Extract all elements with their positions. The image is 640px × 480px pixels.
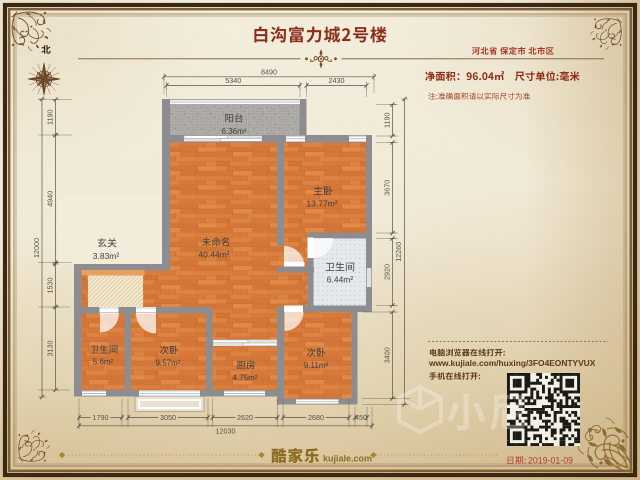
svg-text:3.83m²: 3.83m²: [93, 251, 120, 261]
svg-text:8490: 8490: [261, 67, 277, 76]
svg-text:12260: 12260: [394, 242, 403, 262]
svg-text:9.11m²: 9.11m²: [304, 361, 329, 370]
svg-text:www.kujiale.com/huxing/3FO4EON: www.kujiale.com/huxing/3FO4EONTYVUX: [428, 358, 596, 368]
svg-text:3130: 3130: [46, 341, 55, 357]
svg-text:5.6m²: 5.6m²: [93, 358, 114, 367]
svg-text:4.75m²: 4.75m²: [233, 374, 258, 383]
svg-text:1790: 1790: [93, 413, 109, 422]
svg-text:6.44m²: 6.44m²: [327, 275, 354, 285]
svg-text:12030: 12030: [216, 427, 236, 436]
svg-text:3050: 3050: [160, 413, 176, 422]
svg-text:3670: 3670: [383, 180, 392, 196]
svg-text:2019-01-09: 2019-01-09: [528, 456, 573, 466]
svg-text:9.57m²: 9.57m²: [156, 359, 181, 368]
svg-text:40.44m²: 40.44m²: [198, 250, 229, 260]
svg-text:4940: 4940: [46, 191, 55, 207]
svg-text:5340: 5340: [225, 76, 241, 85]
svg-text:13.77m²: 13.77m²: [306, 199, 337, 209]
svg-text:450: 450: [355, 413, 367, 422]
svg-text:2680: 2680: [308, 413, 324, 422]
svg-text:12000: 12000: [32, 238, 41, 258]
svg-text:kujiale.com: kujiale.com: [323, 454, 372, 464]
svg-text:6.36m²: 6.36m²: [222, 127, 247, 136]
svg-text:1530: 1530: [46, 278, 55, 294]
svg-text:2920: 2920: [383, 264, 392, 280]
svg-text:2430: 2430: [329, 76, 345, 85]
svg-text:2620: 2620: [237, 413, 253, 422]
svg-text:1190: 1190: [383, 113, 392, 128]
svg-text:3400: 3400: [383, 347, 392, 363]
svg-text:1190: 1190: [46, 110, 55, 125]
